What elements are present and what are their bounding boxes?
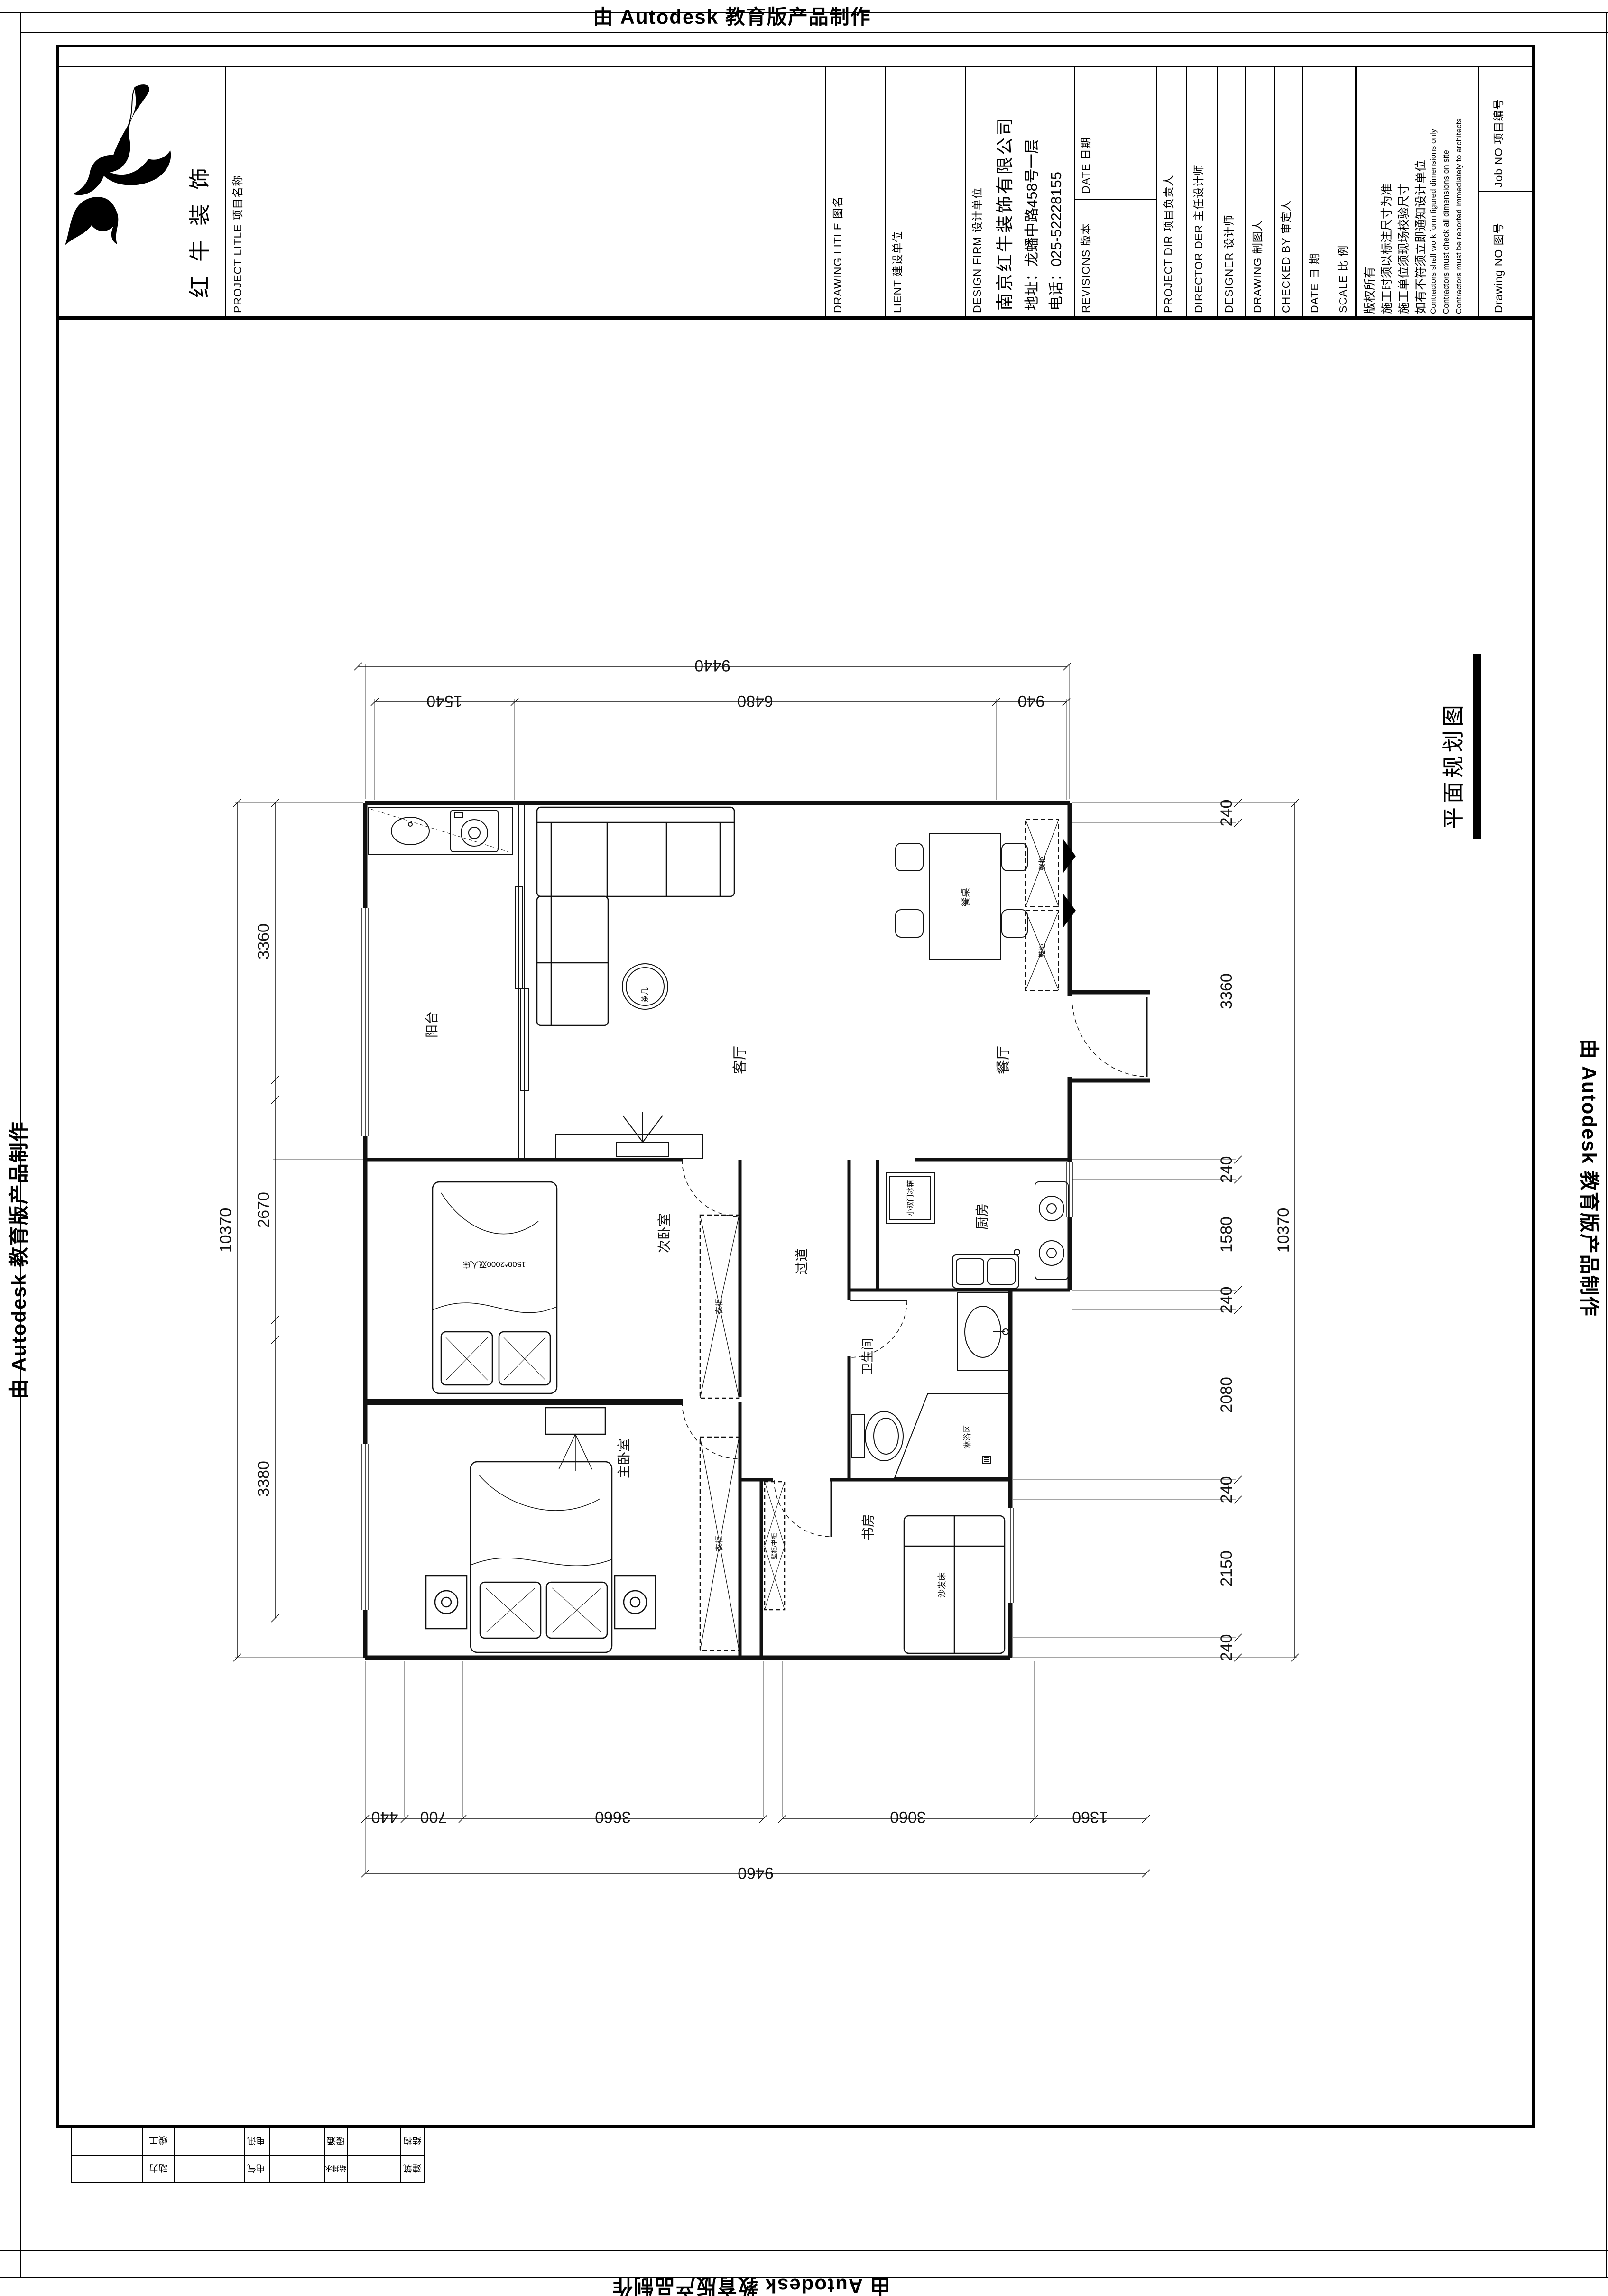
dim-right-3: 240 (1218, 1156, 1236, 1183)
tb-divider (1186, 66, 1187, 317)
dim-right-8: 2150 (1218, 1550, 1236, 1586)
tb-firm-info: 南京红牛装饰有限公司 地址：龙蟠中路458号一层 电话：025-52228155 (990, 116, 1065, 311)
dim-right-total: 10370 (1275, 1208, 1293, 1253)
tb-divider (885, 66, 886, 317)
note-3: 如有不符须立即通知设计单位 (1412, 160, 1429, 314)
dim-right-1: 240 (1218, 800, 1236, 827)
firm-address: 地址：龙蟠中路458号一层 (1020, 116, 1041, 311)
room-label-study: 书房 (861, 1514, 876, 1540)
tb-divider (1245, 66, 1246, 317)
st-r2c4: 建筑 (400, 2155, 424, 2182)
st-line (71, 2182, 424, 2183)
tb-drawing-label: DRAWING LITLE 图名 (829, 196, 845, 313)
label-cabinet2: 鞋柜 (1038, 943, 1046, 958)
trim-line-right (1580, 12, 1580, 2278)
frame-top (56, 45, 1535, 47)
titleblock-bottom-line (56, 316, 1535, 320)
st-line (347, 2127, 348, 2183)
dim-right-5: 240 (1218, 1287, 1236, 1314)
dim-top-total: 9440 (694, 656, 730, 674)
label-wardrobe1: 衣柜 (715, 1299, 724, 1315)
note-en-2: Contractors must check all dimensions on… (1440, 118, 1452, 314)
label-dining-table: 餐桌 (960, 888, 971, 907)
tb-divider (1116, 66, 1116, 317)
dim-right-9: 240 (1218, 1634, 1236, 1661)
dim-left-total: 10370 (217, 1208, 235, 1253)
furniture-labels: 茶几 餐桌 餐柜 鞋柜 1500*2000双人床 衣柜 衣柜 小双门冰箱 淋浴区… (462, 856, 1046, 1598)
drawing-sheet: 由 Autodesk 教育版产品制作 由 Autodesk 教育版产品制作 由 … (0, 0, 1608, 2296)
st-r2c3: 给排水 (324, 2155, 347, 2182)
tb-divider (825, 66, 826, 317)
st-line (424, 2127, 425, 2183)
dining-cabinets (1026, 820, 1059, 990)
dim-top-3: 940 (1018, 692, 1045, 710)
firm-name: 南京红牛装饰有限公司 (990, 116, 1016, 311)
room-label-dining: 餐厅 (996, 1046, 1011, 1074)
trim-line-top (0, 12, 1608, 13)
tb-notes-en: Contractors shall work form figured dime… (1427, 118, 1465, 314)
dim-bottom-5: 1360 (1072, 1808, 1108, 1826)
dim-bottom-3: 3660 (595, 1808, 631, 1826)
room-label-master: 主卧室 (617, 1438, 631, 1478)
tb-job-no-label: Job NO 项目编号 (1489, 99, 1506, 187)
tb-divider (1135, 66, 1135, 317)
study-furniture (765, 1482, 1005, 1653)
page-title: 平面规划图 (1436, 701, 1468, 829)
label-shower: 淋浴区 (963, 1425, 972, 1449)
tb-revisions-label: REVISIONS 版本 (1077, 223, 1093, 313)
copyright-note: 版权所有 (1360, 160, 1377, 314)
floor-plan: 阳台 客厅 餐厅 厨房 过道 次卧室 主卧室 卫生间 书房 茶几 餐桌 餐柜 鞋… (199, 631, 1338, 1935)
tb-project-dir-label: PROJECT DIR 项目负责人 (1159, 175, 1175, 313)
page-title-underline (1473, 654, 1481, 839)
room-label-bedroom2: 次卧室 (657, 1213, 672, 1253)
tb-divider (1217, 66, 1218, 317)
titleblock-top-line (56, 66, 1535, 67)
st-r2c1: 动力 (142, 2155, 174, 2182)
tb-director-label: DIRECTOR DER 主任设计师 (1190, 164, 1206, 313)
trim-line-right2 (1606, 12, 1607, 2278)
master-furniture (426, 1408, 739, 1652)
watermark-right: 由 Autodesk 教育版产品制作 (1576, 1039, 1605, 1317)
trim-line-left (1, 12, 1, 2278)
tb-divider (225, 66, 226, 317)
dimension-lines (233, 663, 1299, 1877)
st-r2c2: 电气 (244, 2155, 269, 2182)
tb-firm-label: DESIGN FIRM 设计单位 (968, 187, 984, 313)
frame-left (56, 45, 59, 2127)
trim-line-bottom (0, 2250, 1608, 2251)
tb-date-label: DATE 日期 (1077, 137, 1093, 194)
fold-mark (692, 0, 692, 32)
dim-bottom-total: 9460 (738, 1864, 774, 1882)
room-label-living: 客厅 (732, 1046, 748, 1074)
room-labels: 阳台 客厅 餐厅 厨房 过道 次卧室 主卧室 卫生间 书房 (425, 1011, 1011, 1540)
label-wardrobe2: 衣柜 (715, 1536, 724, 1552)
tb-divider (1156, 66, 1157, 317)
tb-divider-thick (1355, 66, 1357, 317)
label-sofa-bed: 沙发床 (937, 1572, 947, 1598)
dim-left-3: 3380 (255, 1461, 273, 1497)
trim-line-left2 (20, 12, 21, 2278)
dim-right-7: 240 (1218, 1476, 1236, 1503)
tb-designer-label: DESIGNER 设计师 (1220, 214, 1236, 313)
dim-right-2: 3360 (1218, 973, 1236, 1009)
tb-project-label: PROJECT LITLE 项目名称 (229, 175, 245, 313)
doors (682, 839, 1147, 1537)
watermark-top: 由 Autodesk 教育版产品制作 (593, 1, 871, 30)
dim-right-6: 2080 (1218, 1377, 1236, 1413)
room-label-balcony: 阳台 (425, 1011, 439, 1038)
firm-phone: 电话：025-52228155 (1044, 116, 1065, 311)
room-label-hallway: 过道 (795, 1248, 809, 1275)
tb-divider (1331, 66, 1331, 317)
tb-scale-label: SCALE 比 例 (1334, 245, 1350, 313)
dim-bottom-4: 3060 (890, 1808, 926, 1826)
note-2: 施工单位须现场校验尺寸 (1395, 160, 1412, 314)
trim-line-top2 (20, 32, 1608, 33)
tb-divider (965, 66, 966, 317)
note-1: 施工时须以标注尺寸为准 (1377, 160, 1395, 314)
dim-left-1: 3360 (255, 923, 273, 959)
frame-right (1532, 45, 1535, 2127)
dim-right-4: 1580 (1218, 1217, 1236, 1253)
room-label-bathroom: 卫生间 (860, 1338, 875, 1375)
watermark-bottom: 由 Autodesk 教育版产品制作 (612, 2273, 890, 2296)
dimension-text: 9440 1540 6480 940 440 700 3660 3060 136… (217, 656, 1293, 1882)
st-r1c2: 电讯 (244, 2127, 269, 2155)
st-line (71, 2127, 72, 2183)
tb-client-label: LIENT 建设单位 (888, 231, 905, 313)
dim-bottom-2: 700 (420, 1808, 447, 1826)
watermark-left: 由 Autodesk 教育版产品制作 (3, 1121, 32, 1399)
tb-divider (1302, 66, 1303, 317)
balcony-fixtures (369, 807, 512, 855)
note-en-3: Contractors must be reported immediately… (1452, 118, 1465, 314)
room-label-kitchen: 厨房 (975, 1203, 989, 1230)
dim-bottom-1: 440 (371, 1808, 398, 1826)
st-r1c1: 竣工 (142, 2127, 174, 2155)
st-line (269, 2127, 270, 2183)
tb-drawing-no-label: Drawing NO 图号 (1489, 222, 1506, 313)
label-fridge: 小双门冰箱 (906, 1180, 915, 1216)
label-tea-table: 茶几 (641, 987, 649, 1003)
dim-top-2: 6480 (737, 692, 773, 710)
bedroom2-furniture (433, 1182, 739, 1398)
redniu-logo-icon (64, 78, 183, 282)
tb-revision-split (1074, 199, 1157, 200)
dim-left-2: 2670 (255, 1192, 273, 1228)
label-cabinet1: 餐柜 (1038, 856, 1046, 870)
tb-notes-cn: 版权所有 施工时须以标注尺寸为准 施工单位须现场校验尺寸 如有不符须立即通知设计… (1360, 160, 1429, 314)
tb-divider (1097, 66, 1097, 317)
st-r1c4: 结构 (400, 2127, 424, 2155)
logo-text: 红牛装饰 (183, 154, 214, 298)
note-en-1: Contractors shall work form figured dime… (1427, 118, 1440, 314)
st-line (174, 2127, 175, 2183)
sofa (537, 807, 734, 1025)
tb-divider (1074, 66, 1075, 317)
bathroom-fixtures (852, 1293, 1010, 1478)
tb-divider (1274, 66, 1275, 317)
tb-jobno-split (1478, 191, 1535, 192)
trim-line-bottom2 (0, 2277, 1608, 2278)
tb-date2-label: DATE 日 期 (1305, 253, 1322, 313)
sliding-door (515, 803, 528, 1160)
tb-drafter-label: DRAWING 制图人 (1248, 220, 1265, 313)
st-r1c3: 暖通 (324, 2127, 347, 2155)
dim-top-1: 1540 (426, 692, 462, 710)
label-bed2: 1500*2000双人床 (462, 1260, 526, 1269)
tb-checked-label: CHECKED BY 审定人 (1277, 200, 1293, 313)
label-bookcase: 壁柜/书柜 (771, 1533, 778, 1559)
tv-cabinet (556, 1112, 703, 1158)
